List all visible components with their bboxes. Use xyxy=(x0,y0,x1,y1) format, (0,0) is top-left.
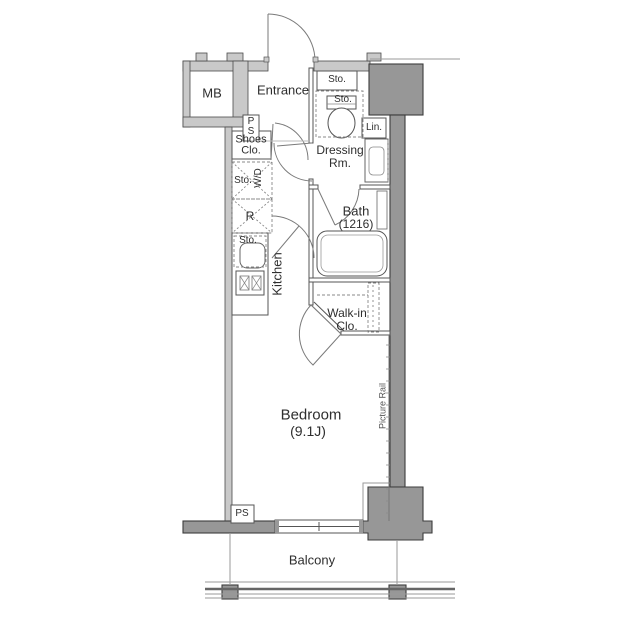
wall-top-left xyxy=(183,61,268,71)
label-sto-entrance: Sto. xyxy=(328,75,346,85)
wall-bath-left xyxy=(309,189,313,278)
wall-bottom-strip xyxy=(183,521,275,533)
label-shoes-2: Clo. xyxy=(241,146,261,157)
door-jambs xyxy=(264,57,318,62)
wall-dressing-bath-a xyxy=(309,185,318,189)
vanity-fixture xyxy=(365,139,388,182)
wall-left xyxy=(225,127,232,532)
jamb-right xyxy=(313,57,318,62)
wall-mb-right xyxy=(233,61,248,121)
wall-entrance-dressing xyxy=(309,68,313,143)
floorplan-drawing xyxy=(0,0,640,639)
kitchen-sink-fixture xyxy=(240,243,265,268)
wall-top-right xyxy=(314,61,370,71)
wall-walkin-left xyxy=(309,282,313,305)
column-bottom-right xyxy=(360,487,432,540)
entrance-door-arc xyxy=(268,14,315,61)
wall-tab-c xyxy=(367,53,381,61)
walkin-shelf-strip xyxy=(368,283,379,332)
label-fridge: R xyxy=(246,210,255,222)
label-wd: W/D xyxy=(254,168,264,187)
label-walkin-2: Clo. xyxy=(336,320,357,332)
window-end-left xyxy=(275,520,279,533)
label-kitchen: Kitchen xyxy=(271,252,284,295)
label-dressing-1: Dressing xyxy=(316,144,363,156)
label-bath-2: (1216) xyxy=(339,218,374,230)
label-bedroom-2: (9.1J) xyxy=(290,424,326,438)
column-right xyxy=(390,115,405,487)
label-balcony: Balcony xyxy=(289,554,335,567)
toilet-bowl xyxy=(328,108,355,138)
label-mb: MB xyxy=(202,87,222,100)
wall-mb-bottom xyxy=(183,117,248,127)
balcony-post-left xyxy=(222,585,238,599)
wall-dressing-bath-b xyxy=(360,185,390,189)
bedroom-window xyxy=(275,520,363,533)
dressing-door-leaf xyxy=(277,143,312,146)
bath-door-leaf xyxy=(318,189,335,225)
label-lin: Lin. xyxy=(366,123,382,133)
column-top-right xyxy=(369,64,423,115)
label-picture-rail: Picture Rail xyxy=(379,383,388,429)
window-end-right xyxy=(359,520,363,533)
label-bath-1: Bath xyxy=(343,205,370,218)
wall-tab-a xyxy=(196,53,207,61)
label-ps-bottom: PS xyxy=(235,509,248,519)
label-dressing-2: Rm. xyxy=(329,157,351,169)
wall-tab-b xyxy=(227,53,243,61)
floorplan: MB Entrance Sto. Sto. Lin. Dressing Rm. … xyxy=(0,0,640,639)
balcony-post-right xyxy=(389,585,406,599)
label-entrance: Entrance xyxy=(257,84,309,97)
label-sto-wd: Sto. xyxy=(234,176,252,186)
jamb-left xyxy=(264,57,269,62)
label-sto-kitchen: Sto. xyxy=(239,236,257,246)
balcony-railing xyxy=(205,582,455,598)
label-walkin-1: Walk-in xyxy=(327,307,367,319)
label-bedroom-1: Bedroom xyxy=(281,408,342,423)
wall-bath-walkin xyxy=(309,278,390,282)
label-sto-toilet: Sto. xyxy=(334,95,352,105)
bathtub-fixture xyxy=(317,231,387,276)
bath-shelf xyxy=(377,191,387,229)
